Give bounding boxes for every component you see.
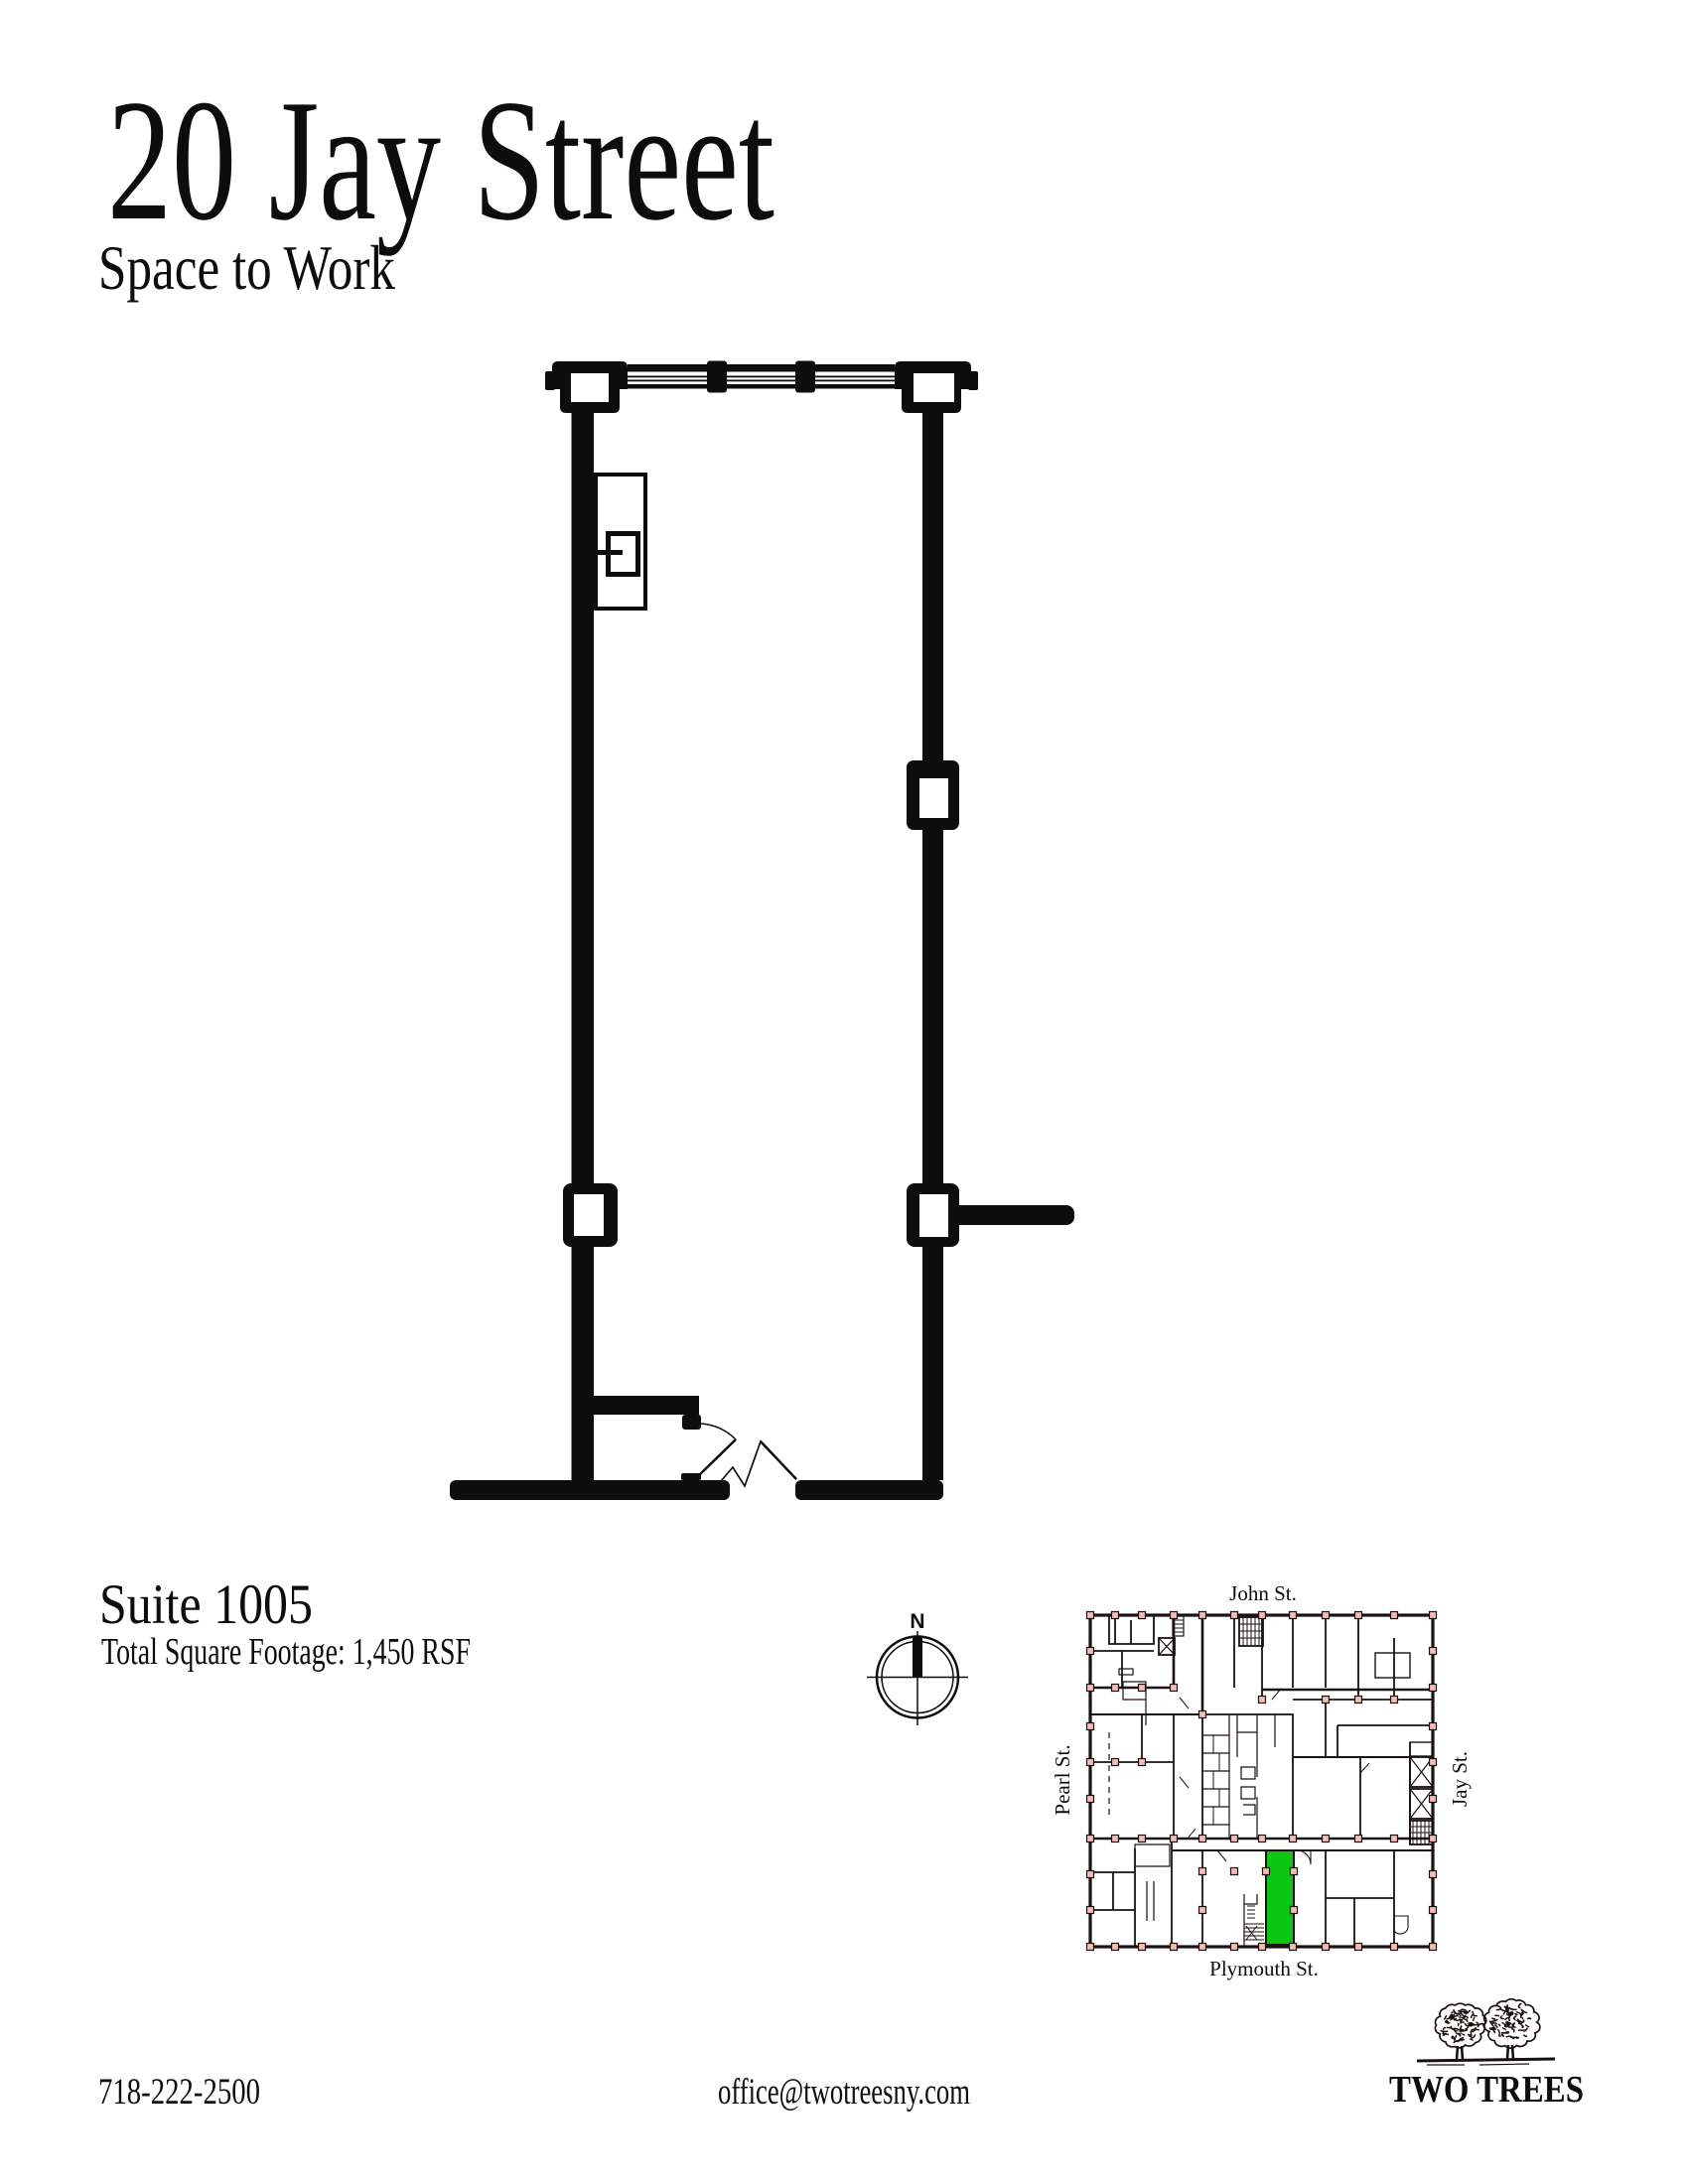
svg-text:Pearl St.: Pearl St. bbox=[1051, 1744, 1074, 1815]
svg-text:N: N bbox=[910, 1610, 924, 1633]
svg-text:office@twotreesny.com: office@twotreesny.com bbox=[718, 2072, 970, 2113]
svg-text:Total Square Footage: 1,450 RS: Total Square Footage: 1,450 RSF bbox=[101, 1631, 471, 1673]
svg-text:Plymouth St.: Plymouth St. bbox=[1209, 1957, 1319, 1980]
svg-text:John St.: John St. bbox=[1229, 1581, 1297, 1605]
svg-text:Jay St.: Jay St. bbox=[1448, 1751, 1472, 1807]
svg-text:Suite 1005: Suite 1005 bbox=[99, 1573, 313, 1636]
svg-text:Space to Work: Space to Work bbox=[98, 233, 395, 303]
svg-text:718-222-2500: 718-222-2500 bbox=[98, 2072, 260, 2113]
svg-text:20 Jay Street: 20 Jay Street bbox=[107, 64, 774, 256]
svg-text:TWO TREES: TWO TREES bbox=[1389, 2069, 1584, 2111]
